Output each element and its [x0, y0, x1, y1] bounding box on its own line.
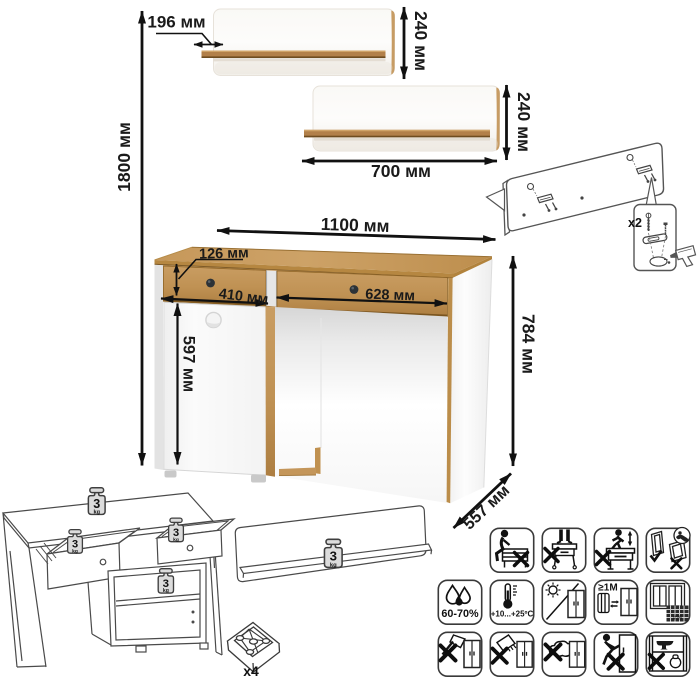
svg-text:#25: #25	[673, 616, 682, 622]
svg-text:196 мм: 196 мм	[147, 13, 205, 32]
svg-text:240 мм: 240 мм	[514, 92, 534, 152]
svg-text:240 мм: 240 мм	[411, 11, 431, 71]
svg-text:597 мм: 597 мм	[180, 336, 198, 393]
svg-text:628 мм: 628 мм	[365, 287, 415, 305]
svg-text:1100 мм: 1100 мм	[321, 214, 390, 236]
svg-text:60-70%: 60-70%	[441, 608, 479, 620]
svg-text:784 мм: 784 мм	[519, 314, 539, 374]
svg-text:700 мм: 700 мм	[371, 161, 431, 181]
svg-text:x4: x4	[243, 663, 259, 679]
svg-text:≥1M: ≥1M	[598, 583, 617, 594]
svg-text:x2: x2	[628, 216, 642, 230]
svg-text:1800 мм: 1800 мм	[114, 122, 134, 192]
svg-text:+10...+25ºC: +10...+25ºC	[491, 610, 534, 619]
